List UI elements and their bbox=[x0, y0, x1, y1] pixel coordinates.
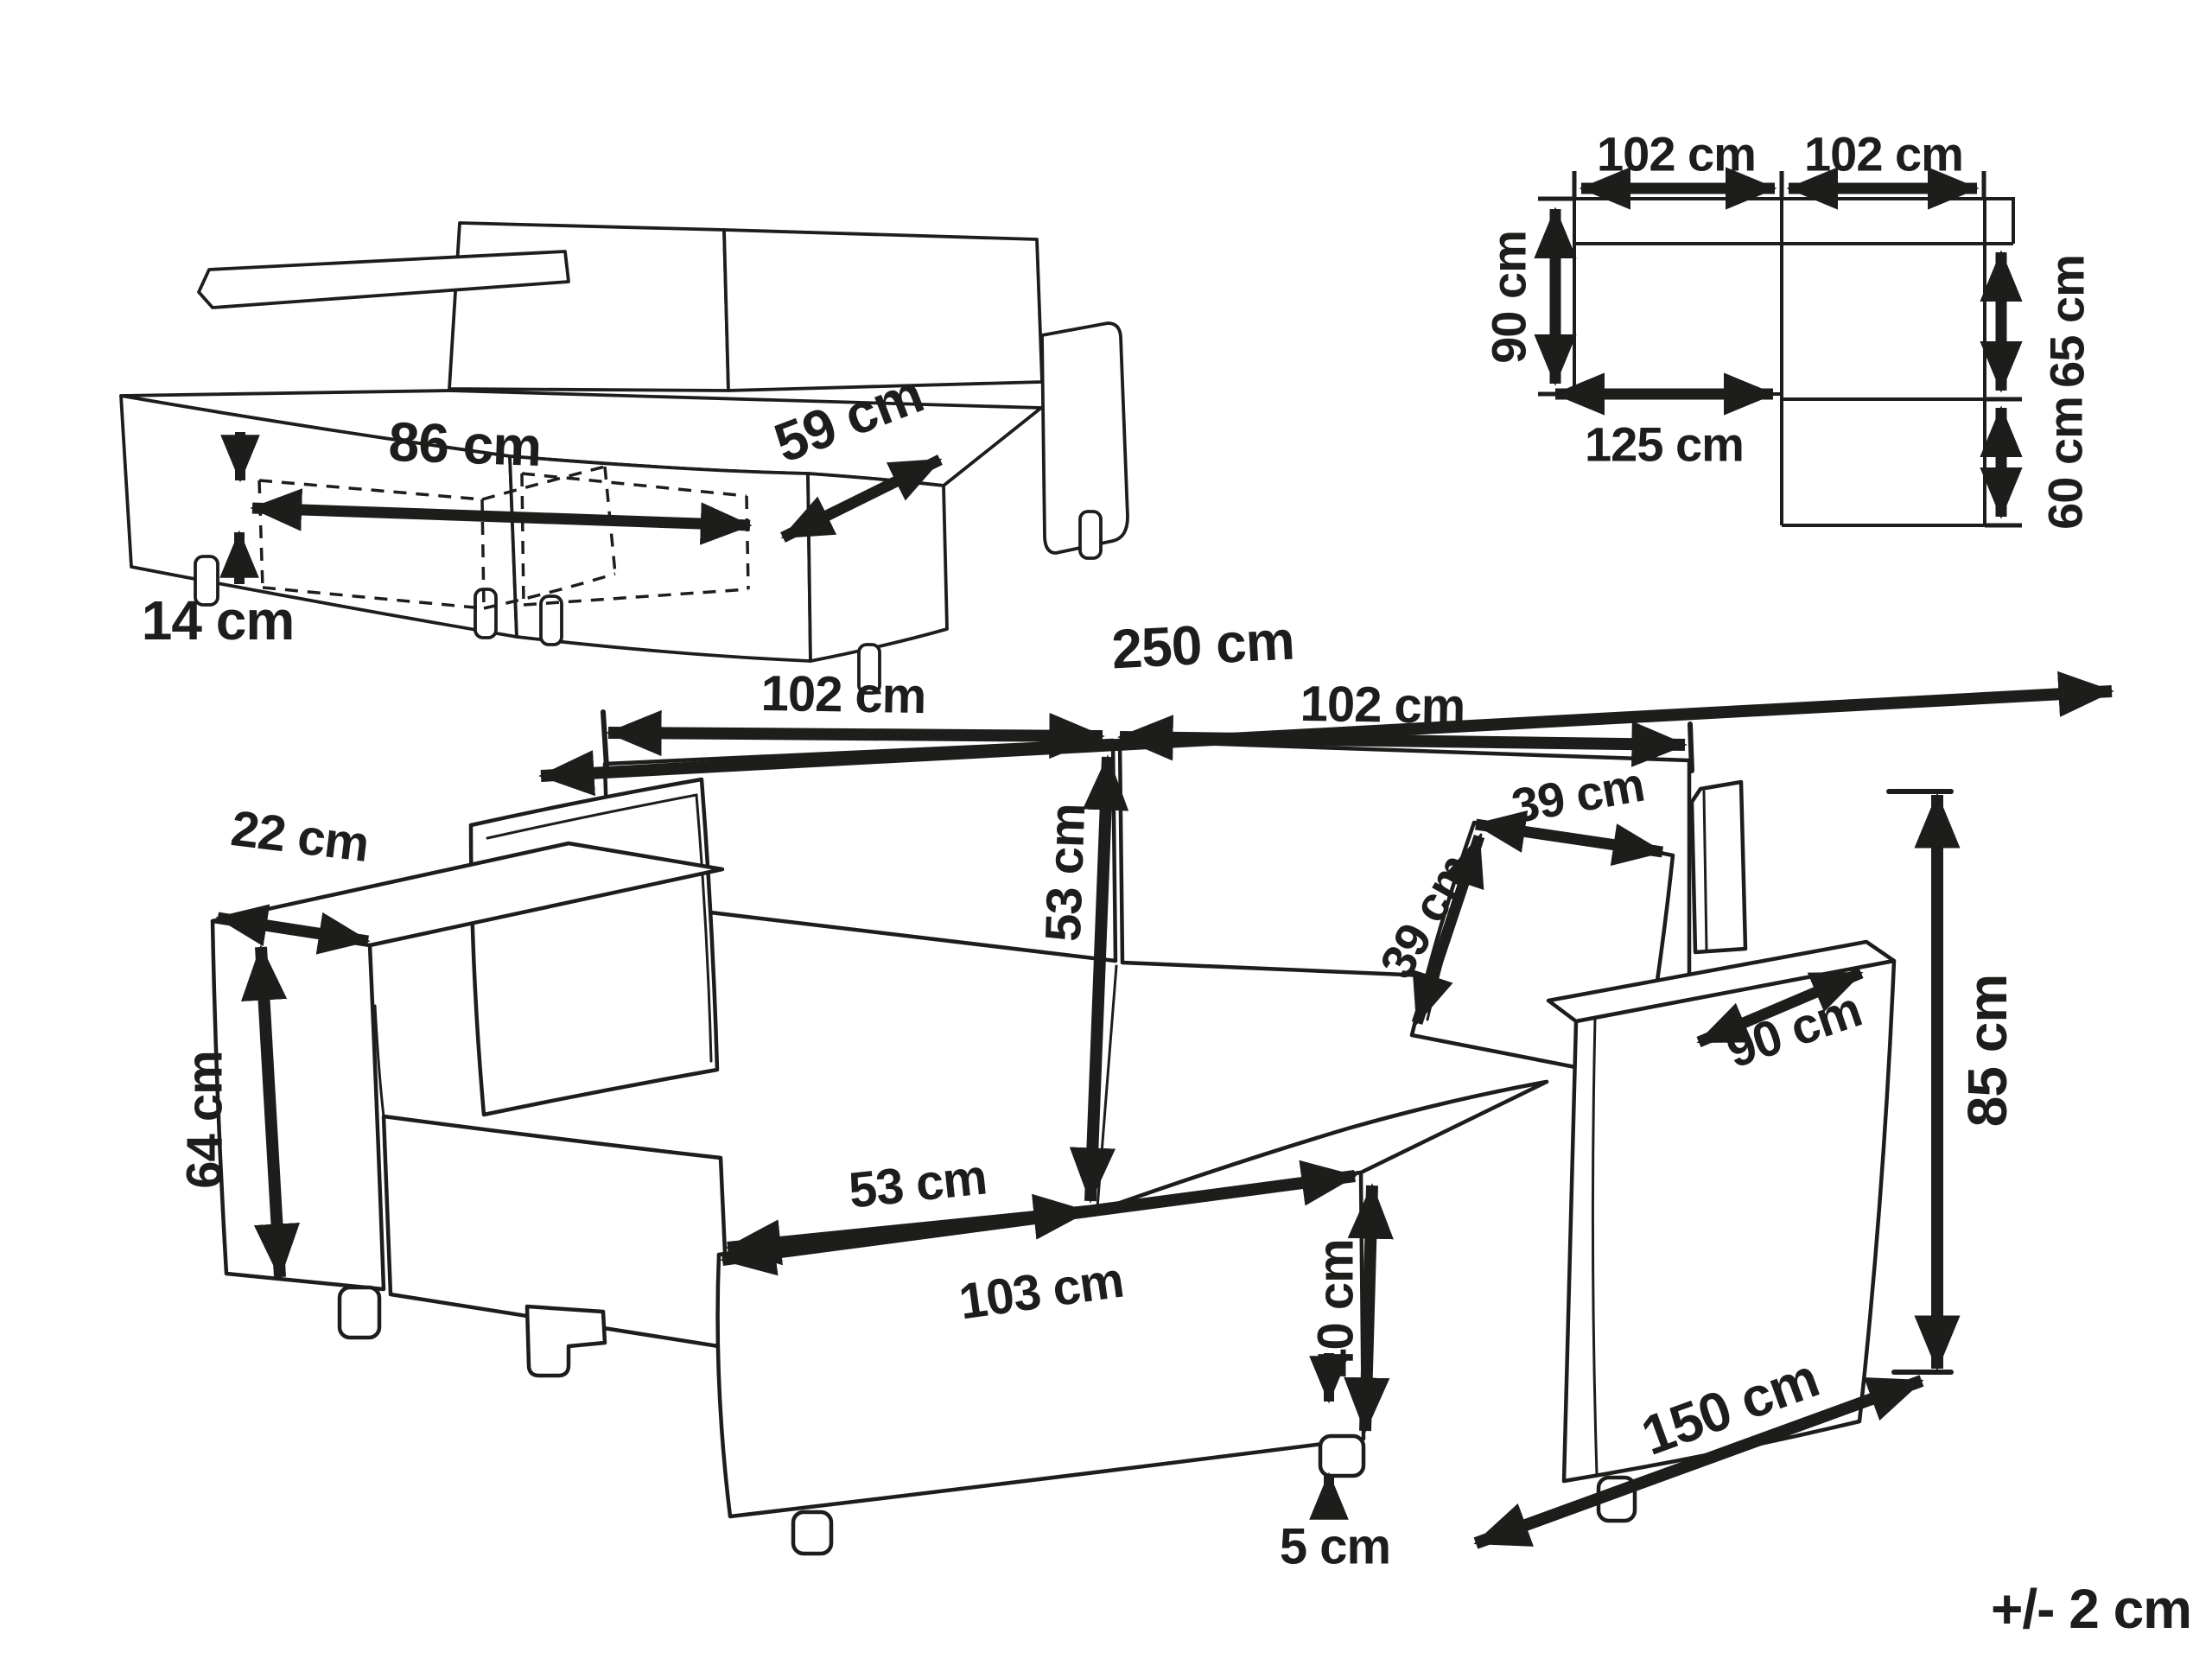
label-plan-upper-right-depth: 65 cm bbox=[2040, 255, 2094, 388]
label-plan-lower-right-depth: 60 cm bbox=[2038, 397, 2093, 530]
sketch-leg bbox=[475, 589, 496, 638]
label-armrest-height: 64 cm bbox=[177, 1051, 233, 1188]
sofa-leg bbox=[340, 1287, 379, 1338]
label-plan-bed-length: 125 cm bbox=[1585, 417, 1744, 472]
sketch-backrest-left bbox=[449, 223, 728, 391]
left-cushion bbox=[471, 779, 717, 1115]
label-storage-width: 86 cm bbox=[388, 410, 543, 478]
label-armrest-width: 22 cm bbox=[228, 800, 372, 873]
sofa-leg bbox=[1320, 1436, 1363, 1476]
storage-sketch: 86 cm 59 cm 14 cm bbox=[121, 223, 1128, 693]
floor-plan-outline bbox=[1574, 199, 2013, 525]
sofa-leg bbox=[793, 1512, 831, 1554]
chaise-front-face bbox=[718, 1173, 1363, 1516]
label-leg-height: 5 cm bbox=[1280, 1519, 1390, 1575]
floor-plan: 102 cm 102 cm 90 cm 125 cm 65 cm 60 cm bbox=[1482, 127, 2094, 530]
sketch-body-right-face bbox=[808, 474, 947, 661]
label-backrest-height: 53 cm bbox=[1035, 803, 1096, 943]
tolerance-note: +/- 2 cm bbox=[1991, 1578, 2191, 1640]
sketch-leg bbox=[1080, 512, 1101, 558]
label-plan-left-depth: 90 cm bbox=[1482, 231, 1536, 364]
label-storage-clearance: 14 cm bbox=[142, 589, 294, 652]
sofa-leg-stepped bbox=[527, 1306, 605, 1376]
label-total-height: 85 cm bbox=[1956, 975, 2018, 1127]
arrow-right-section-width bbox=[1120, 737, 1685, 745]
label-plan-right-width: 102 cm bbox=[1804, 127, 1963, 181]
arrow-seat-height bbox=[1365, 1185, 1372, 1431]
label-seat-height: 40 cm bbox=[1308, 1239, 1364, 1376]
label-total-width: 250 cm bbox=[1110, 609, 1296, 681]
label-plan-left-width: 102 cm bbox=[1597, 127, 1756, 181]
label-seat-depth: 53 cm bbox=[846, 1148, 988, 1218]
left-armrest-face bbox=[213, 921, 384, 1289]
front-view: 250 cm 102 cm 102 cm 53 cm 53 cm 103 cm … bbox=[177, 609, 2113, 1575]
arrow-left-section-width bbox=[608, 733, 1103, 736]
headrest-board bbox=[1692, 782, 1745, 952]
sofa-dimension-diagram: 86 cm 59 cm 14 cm 102 cm 102 cm bbox=[0, 0, 2212, 1659]
label-right-section-width: 102 cm bbox=[1300, 676, 1465, 734]
dimension-diagram-page: 86 cm 59 cm 14 cm 102 cm 102 cm bbox=[0, 0, 2212, 1659]
plan-outline bbox=[1574, 199, 2013, 394]
sketch-backrest-right bbox=[724, 230, 1042, 391]
label-left-section-width: 102 cm bbox=[760, 665, 926, 724]
